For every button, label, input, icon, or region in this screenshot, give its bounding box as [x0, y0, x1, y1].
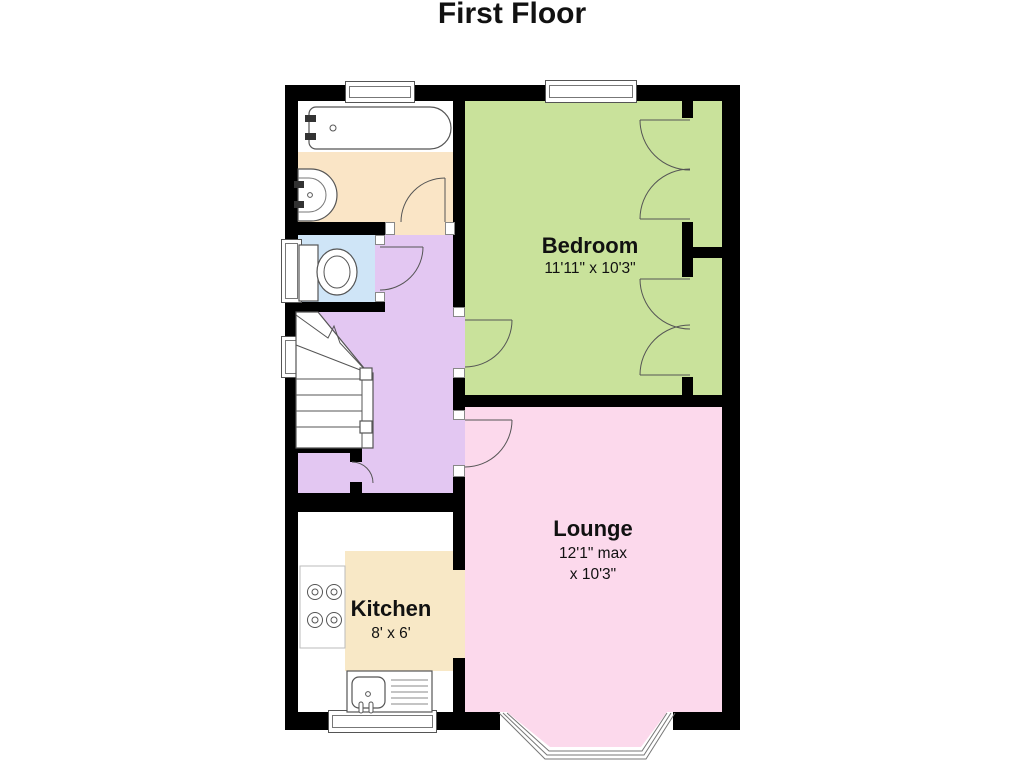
plan-title: First Floor: [438, 0, 586, 31]
cupboard-wall-lower: [350, 482, 362, 493]
kitchen-window: [328, 710, 437, 733]
outer-wall-right: [722, 85, 740, 730]
spine-wall-seg4: [453, 658, 465, 712]
lounge-dimensions-line1: 12'1" max: [559, 545, 627, 563]
lounge-dimensions-line2: x 10'3": [570, 566, 616, 584]
wc-floor: [298, 235, 375, 302]
kitchen-label: Kitchen: [351, 596, 432, 622]
door-jamb: [453, 307, 465, 317]
floorplan-canvas: First Floor Bedroom 11'11" x 10'3" Loung…: [0, 0, 1024, 768]
hall-south-wall: [285, 493, 465, 512]
door-jamb: [453, 410, 465, 420]
door-jamb: [453, 368, 465, 378]
spine-wall-seg3: [453, 477, 465, 570]
outer-wall-bottom-right: [673, 712, 740, 730]
lounge-label: Lounge: [553, 516, 632, 542]
door-jamb: [385, 222, 395, 235]
door-jamb: [445, 222, 455, 235]
bedroom-lounge-wall: [453, 395, 740, 407]
lounge-doorway: [453, 420, 465, 465]
cupboard-wall-upper: [350, 445, 362, 462]
bay-window-floor: [507, 712, 667, 747]
door-jamb: [375, 235, 385, 245]
wc-south-wall: [285, 302, 385, 312]
wardrobe-divider-h: [693, 247, 722, 258]
door-jamb: [375, 292, 385, 302]
stairs-window: [281, 336, 302, 378]
bathroom-window: [345, 81, 415, 103]
wardrobe-stub-top: [682, 100, 693, 118]
wardrobe-divider-v: [682, 222, 693, 277]
bathtub: [305, 107, 451, 149]
spine-wall-seg1: [453, 100, 465, 307]
bedroom-window: [545, 80, 637, 103]
bedroom-dimensions: 11'11" x 10'3": [544, 260, 635, 278]
bathroom-south-wall: [285, 222, 385, 235]
bathroom-doorway: [395, 222, 445, 235]
outer-wall-left: [285, 85, 298, 730]
door-jamb: [453, 465, 465, 477]
bay-window: [499, 713, 675, 759]
kitchen-dimensions: 8' x 6': [371, 625, 411, 643]
bedroom-label: Bedroom: [542, 233, 639, 259]
wardrobe-stub-bottom: [682, 377, 693, 395]
wc-window: [281, 239, 302, 303]
bedroom-doorway: [453, 317, 465, 368]
